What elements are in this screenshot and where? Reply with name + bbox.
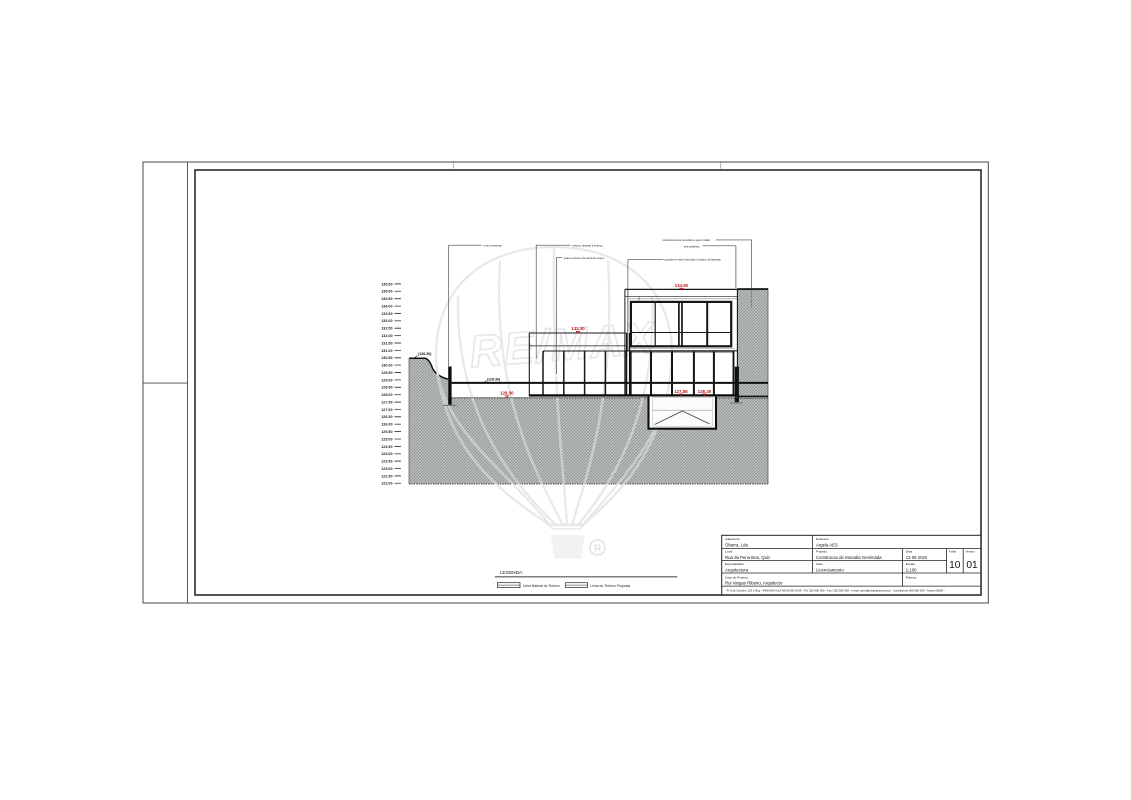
svg-text:133.50: 133.50 [381,312,392,316]
svg-text:124.00: 124.00 [381,452,392,456]
svg-text:Argela AES: Argela AES [816,542,838,547]
svg-text:- R. 5 de Outubro 123 1-Esq -: - R. 5 de Outubro 123 1-Esq - 4400-000 V… [725,589,945,593]
svg-text:128.00: 128.00 [381,393,392,397]
svg-text:122.50: 122.50 [381,474,392,478]
svg-text:Data: Data [906,550,913,554]
svg-text:Construcao de Moradia Geminada: Construcao de Moradia Geminada [816,555,882,560]
svg-text:134.50: 134.50 [381,297,392,301]
svg-text:estore exterior de laminas ori: estore exterior de laminas orient. [564,256,605,260]
svg-text:Adquirente: Adquirente [725,537,740,541]
svg-text:133.00: 133.00 [381,319,392,323]
svg-text:127.00: 127.00 [381,408,392,412]
svg-text:135.00: 135.00 [381,290,392,294]
svg-text:132.30: 132.30 [571,326,585,331]
svg-text:tela asfaltica: tela asfaltica [684,244,700,248]
svg-text:129.00: 129.00 [381,378,392,382]
svg-text:123.00: 123.00 [381,467,392,471]
svg-text:125.50: 125.50 [381,430,392,434]
svg-text:Folha: Folha [949,549,956,553]
svg-text:Arquitectura: Arquitectura [725,567,749,572]
svg-text:guarda em vidro laminado no pl: guarda em vidro laminado no plano da fac… [665,258,722,262]
svg-text:Local: Local [725,550,733,554]
svg-text:123.50: 123.50 [381,460,392,464]
svg-text:135.50: 135.50 [381,282,392,286]
svg-text:R: R [594,542,602,554]
svg-text:132.00: 132.00 [381,334,392,338]
svg-text:129.50: 129.50 [381,371,392,375]
svg-text:13 08 2022: 13 08 2022 [906,555,928,560]
svg-text:cobertura plana revestida a se: cobertura plana revestida a seixo rolado [662,238,710,242]
svg-text:127.50: 127.50 [381,401,392,405]
svg-text:Endereco: Endereco [816,537,829,541]
svg-text:Rui Vargas Ribeiro, Arquitecto: Rui Vargas Ribeiro, Arquitecto [725,581,783,586]
svg-text:134.00: 134.00 [381,305,392,309]
svg-text:Versao: Versao [966,549,975,553]
svg-text:126.30: 126.30 [698,389,712,394]
svg-text:131.50: 131.50 [381,341,392,345]
svg-text:Linha do Terreno Proposta: Linha do Terreno Proposta [590,584,630,588]
svg-text:Obarra, Lda: Obarra, Lda [725,542,749,547]
svg-text:125.00: 125.00 [381,437,392,441]
svg-text:Fase: Fase [816,562,823,566]
svg-text:128.30: 128.30 [500,391,514,396]
svg-text:Rubrica: Rubrica [906,575,917,579]
svg-text:130.50: 130.50 [381,356,392,360]
svg-text:126.00: 126.00 [381,423,392,427]
svg-text:10: 10 [949,560,961,571]
svg-text:132.50: 132.50 [381,327,392,331]
svg-text:Escala: Escala [906,562,915,566]
svg-text:muro existente: muro existente [484,244,503,248]
svg-text:1:100: 1:100 [906,567,917,572]
svg-text:134.90: 134.90 [675,283,689,288]
svg-text:Linha Natural do Terreno: Linha Natural do Terreno [523,584,560,588]
svg-text:reboco pintado a branco: reboco pintado a branco [573,244,604,248]
svg-text:(128.30): (128.30) [487,377,501,381]
svg-text:124.50: 124.50 [381,445,392,449]
svg-text:Autor do Projecto: Autor do Projecto [725,575,749,579]
svg-text:Rua da Pena Boa, Quiz: Rua da Pena Boa, Quiz [725,555,770,560]
svg-text:127.85: 127.85 [674,389,688,394]
svg-text:(130.30): (130.30) [418,352,432,356]
svg-text:128.50: 128.50 [381,386,392,390]
svg-text:01: 01 [966,560,978,571]
svg-text:126.50: 126.50 [381,415,392,419]
svg-text:Especialidade: Especialidade [725,562,744,566]
svg-text:Licenciamento: Licenciamento [816,567,844,572]
svg-text:122.00: 122.00 [381,482,392,486]
svg-text:130.00: 130.00 [381,364,392,368]
svg-text:131.00: 131.00 [381,349,392,353]
svg-text:Projecto: Projecto [816,550,827,554]
svg-text:LEGENDA:: LEGENDA: [500,570,523,575]
